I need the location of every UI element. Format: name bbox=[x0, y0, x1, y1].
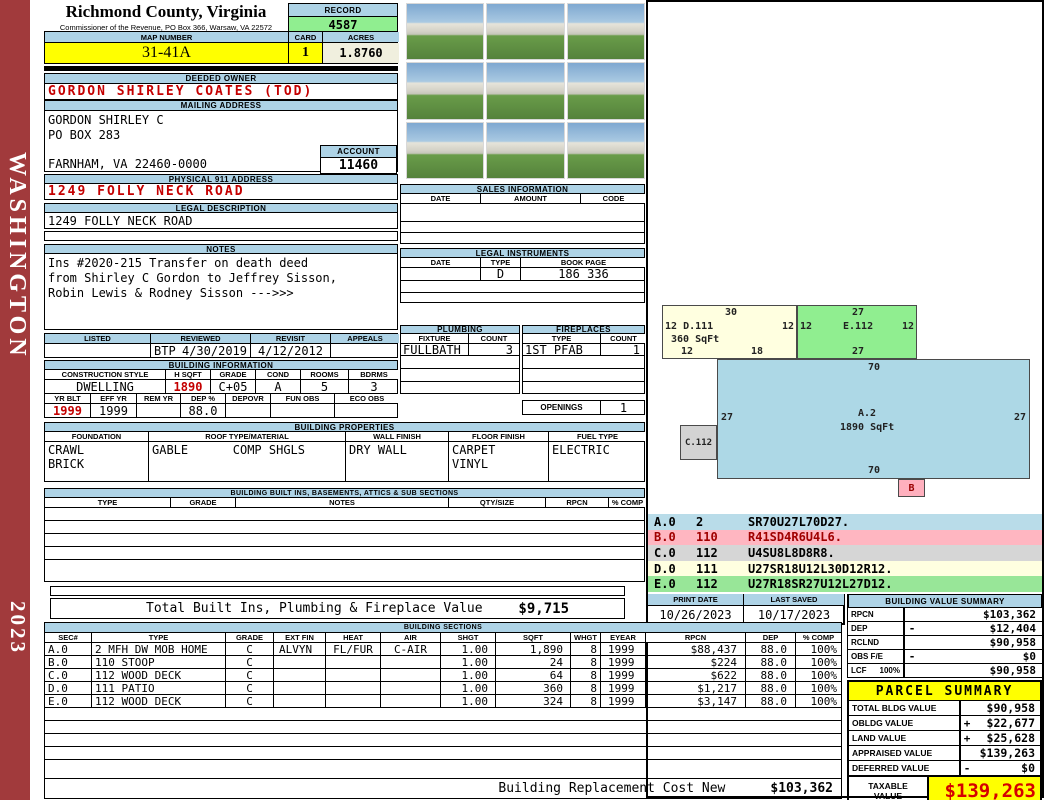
print-save-values: 10/26/2023 10/17/2023 bbox=[648, 606, 843, 623]
col-label: DATE bbox=[401, 258, 481, 267]
cell: B.0 bbox=[45, 656, 92, 668]
legend-row: B.0 110 R41SD4R6U4L6. bbox=[648, 530, 1042, 546]
col-label: CODE bbox=[581, 194, 646, 203]
appeals-value bbox=[331, 344, 399, 357]
replacement-cost-label: Building Replacement Cost New bbox=[498, 781, 725, 796]
col-label: TYPE bbox=[481, 258, 521, 267]
cell: 1999 bbox=[601, 669, 646, 681]
taxable-label-2: VALUE bbox=[874, 791, 902, 800]
col-label: BDRMS bbox=[349, 370, 399, 379]
parcel-label: APPRAISED VALUE bbox=[849, 746, 961, 760]
cell: 1999 bbox=[601, 682, 646, 694]
cell: $1,217 bbox=[646, 682, 746, 694]
cell: 8 bbox=[571, 695, 601, 707]
property-photo[interactable] bbox=[567, 122, 645, 179]
col-label: REM YR bbox=[137, 394, 181, 403]
legend-row: E.0 112 U27R18SR27U12L27D12. bbox=[648, 576, 1042, 592]
sketch-section-c112: C.112 bbox=[680, 425, 717, 460]
bvs-value: $12,404 bbox=[919, 622, 1039, 635]
built-ins-total-label: Total Built Ins, Plumbing & Fireplace Va… bbox=[146, 601, 483, 616]
depovr-value bbox=[226, 404, 271, 417]
building-properties-headers: FOUNDATION ROOF TYPE/MATERIAL WALL FINIS… bbox=[44, 432, 645, 442]
col-label: DATE bbox=[401, 194, 481, 203]
building-info-headers-2: YR BLT EFF YR REM YR DEP % DEPOVR FUN OB… bbox=[44, 394, 398, 404]
parcel-value: $25,628 bbox=[973, 731, 1038, 745]
building-sections-title: BUILDING SECTIONS bbox=[45, 623, 841, 633]
cell: 100% bbox=[796, 669, 841, 681]
instrument-date bbox=[401, 268, 481, 280]
cell: C bbox=[226, 695, 274, 707]
building-section-row: C.0112 WOOD DECKC1.006481999$62288.0100% bbox=[45, 669, 841, 682]
col-label: RPCN bbox=[546, 498, 609, 507]
parcel-op bbox=[961, 701, 973, 715]
col-label: FUN OBS bbox=[271, 394, 335, 403]
fixture-count: 3 bbox=[469, 344, 519, 355]
listed-value bbox=[45, 344, 151, 357]
property-photo[interactable] bbox=[567, 62, 645, 119]
building-section-row: B.0110 STOOPC1.002481999$22488.0100% bbox=[45, 656, 841, 669]
bvs-row: OBS F/E - $0 bbox=[848, 650, 1042, 664]
col-label: CONSTRUCTION STYLE bbox=[45, 370, 166, 379]
empty-row bbox=[401, 356, 519, 369]
col-label: YR BLT bbox=[45, 394, 91, 403]
construction-style-value: DWELLING bbox=[45, 380, 166, 393]
parcel-label: OBLDG VALUE bbox=[849, 716, 961, 730]
cell: 110 STOOP bbox=[92, 656, 226, 668]
floor-2: VINYL bbox=[452, 457, 488, 471]
cell: 64 bbox=[496, 669, 571, 681]
empty-row bbox=[45, 508, 644, 521]
sketch-section-e112: 27 12 E.112 12 27 bbox=[797, 305, 917, 359]
fireplace-count-value: 1 bbox=[601, 344, 646, 355]
building-properties-title: BUILDING PROPERTIES bbox=[44, 422, 645, 432]
legal-instruments-body bbox=[400, 281, 645, 303]
col-label: GRADE bbox=[226, 633, 274, 642]
parcel-op bbox=[961, 746, 973, 760]
cell bbox=[381, 682, 441, 694]
empty-row bbox=[45, 721, 841, 734]
eco-obs-value bbox=[335, 404, 399, 417]
legend-code: D.0 bbox=[654, 562, 696, 576]
page-title: Richmond County, Virginia bbox=[46, 2, 286, 22]
col-label: % COMP bbox=[796, 633, 841, 642]
bvs-extra: 100% bbox=[880, 666, 900, 675]
property-photo[interactable] bbox=[486, 122, 564, 179]
cell: 100% bbox=[796, 695, 841, 707]
col-label: DEP % bbox=[181, 394, 226, 403]
fuel-type-value: ELECTRIC bbox=[549, 442, 646, 481]
col-label: EXT FIN bbox=[274, 633, 326, 642]
cell bbox=[274, 682, 326, 694]
cell bbox=[326, 669, 381, 681]
cell: 1.00 bbox=[441, 682, 496, 694]
parcel-value: $22,677 bbox=[973, 716, 1038, 730]
fireplaces-body bbox=[522, 356, 645, 394]
bvs-row: LCF100% $90,958 bbox=[848, 664, 1042, 678]
fireplace-count-label: COUNT bbox=[601, 334, 646, 343]
taxable-value-amount: $139,263 bbox=[929, 777, 1040, 800]
bdrms-value: 3 bbox=[349, 380, 399, 393]
cell: E.0 bbox=[45, 695, 92, 707]
col-label: HEAT bbox=[326, 633, 381, 642]
county-header: Richmond County, Virginia Commissioner o… bbox=[46, 2, 286, 32]
review-values: BTP 4/30/2019 4/12/2012 bbox=[44, 344, 398, 358]
cell: C bbox=[226, 656, 274, 668]
col-label: ROOMS bbox=[301, 370, 349, 379]
empty-row bbox=[45, 708, 841, 721]
legend-row: A.0 2 SR70U27L70D27. bbox=[648, 514, 1042, 530]
deeded-owner-label: DEEDED OWNER bbox=[44, 73, 398, 84]
cell: C.0 bbox=[45, 669, 92, 681]
col-label: TYPE bbox=[45, 498, 171, 507]
cell: A.0 bbox=[45, 643, 92, 655]
bvs-label: OBS F/E bbox=[851, 652, 883, 661]
deeded-owner-value: GORDON SHIRLEY COATES (TOD) bbox=[44, 84, 398, 100]
replacement-cost-value: $103,362 bbox=[770, 781, 833, 796]
bvs-value: $90,958 bbox=[919, 636, 1039, 649]
sketch-legend: A.0 2 SR70U27L70D27. B.0 110 R41SD4R6U4L… bbox=[648, 514, 1042, 592]
roof-value: GABLE COMP SHGLS bbox=[149, 442, 346, 481]
cell: 1.00 bbox=[441, 669, 496, 681]
mailing-address-block: GORDON SHIRLEY C PO BOX 283 FARNHAM, VA … bbox=[44, 111, 398, 172]
eff-yr-value: 1999 bbox=[91, 404, 137, 417]
reviewed-by: BTP bbox=[154, 344, 176, 357]
col-label: QTY/SIZE bbox=[449, 498, 546, 507]
legend-num: 110 bbox=[696, 530, 748, 544]
col-label: EYEAR bbox=[601, 633, 646, 642]
taxable-value-label: TAXABLE VALUE bbox=[849, 777, 929, 800]
physical-address-label: PHYSICAL 911 ADDRESS bbox=[44, 174, 398, 184]
legend-path: R41SD4R6U4L6. bbox=[748, 530, 1042, 544]
col-label: SQFT bbox=[496, 633, 571, 642]
print-date-label: PRINT DATE bbox=[648, 594, 744, 606]
sidebar-district-label: WASHINGTON bbox=[0, 122, 30, 390]
sketch-section-a2: 70 27 A.2 1890 SqFt 27 70 bbox=[717, 359, 1030, 479]
reviewed-value: BTP 4/30/2019 bbox=[151, 344, 251, 357]
empty-row bbox=[401, 369, 519, 382]
cell: C-AIR bbox=[381, 643, 441, 655]
listed-label: LISTED bbox=[45, 334, 151, 343]
empty-row bbox=[45, 747, 841, 760]
divider-bar bbox=[44, 66, 398, 71]
mailing-address-label: MAILING ADDRESS bbox=[44, 100, 398, 111]
cell: 1,890 bbox=[496, 643, 571, 655]
dim-label: 27 bbox=[1014, 412, 1026, 423]
empty-row bbox=[401, 204, 644, 222]
notes-label: NOTES bbox=[44, 244, 398, 254]
wall-finish-value: DRY WALL bbox=[346, 442, 449, 481]
legend-num: 112 bbox=[696, 546, 748, 560]
foundation-2: BRICK bbox=[48, 457, 84, 471]
print-save-headers: PRINT DATE LAST SAVED bbox=[648, 594, 843, 606]
building-sections-headers: SEC# TYPE GRADE EXT FIN HEAT AIR SHGT SQ… bbox=[45, 633, 841, 643]
bvs-op bbox=[905, 636, 919, 649]
col-label: COND bbox=[256, 370, 301, 379]
cell: 100% bbox=[796, 682, 841, 694]
bvs-op bbox=[905, 608, 919, 621]
foundation-1: CRAWL bbox=[48, 443, 84, 457]
fireplace-type-label: TYPE bbox=[523, 334, 601, 343]
dim-label: 12 bbox=[681, 346, 693, 357]
cell bbox=[381, 656, 441, 668]
cell: ALVYN bbox=[274, 643, 326, 655]
property-photo[interactable] bbox=[567, 3, 645, 60]
cell: C bbox=[226, 669, 274, 681]
empty-row bbox=[44, 231, 398, 241]
foundation-value: CRAWL BRICK bbox=[45, 442, 149, 481]
cell bbox=[326, 682, 381, 694]
floor-finish-label: FLOOR FINISH bbox=[449, 432, 549, 441]
last-saved-label: LAST SAVED bbox=[744, 594, 844, 606]
map-number-value: 31-41A bbox=[45, 43, 289, 63]
sidebar: WASHINGTON 2023 bbox=[0, 0, 30, 800]
building-section-row: A.02 MFH DW MOB HOMECALVYNFL/FURC-AIR1.0… bbox=[45, 643, 841, 656]
col-label: NOTES bbox=[236, 498, 449, 507]
record-label: RECORD bbox=[288, 3, 398, 17]
bvs-op bbox=[905, 664, 919, 677]
cell: $3,147 bbox=[646, 695, 746, 707]
cell: 8 bbox=[571, 669, 601, 681]
bvs-op: - bbox=[905, 622, 919, 635]
bvs-label: DEP bbox=[851, 624, 867, 633]
property-photo[interactable] bbox=[486, 62, 564, 119]
cell: 1.00 bbox=[441, 656, 496, 668]
col-label: H SQFT bbox=[166, 370, 211, 379]
grade-value: C+05 bbox=[211, 380, 256, 393]
plumbing-title: PLUMBING bbox=[400, 325, 520, 334]
cell: 1.00 bbox=[441, 643, 496, 655]
col-label: EFF YR bbox=[91, 394, 137, 403]
roof-label: ROOF TYPE/MATERIAL bbox=[149, 432, 346, 441]
fun-obs-value bbox=[271, 404, 335, 417]
property-photo[interactable] bbox=[406, 62, 484, 119]
card-label: CARD bbox=[289, 32, 323, 42]
taxable-label-1: TAXABLE bbox=[868, 781, 908, 791]
legend-path: U4SU8L8D8R8. bbox=[748, 546, 1042, 560]
building-info-headers-1: CONSTRUCTION STYLE H SQFT GRADE COND ROO… bbox=[44, 370, 398, 380]
cell: C bbox=[226, 643, 274, 655]
parcel-row: TOTAL BLDG VALUE $90,958 bbox=[849, 700, 1040, 715]
empty-row bbox=[401, 222, 644, 233]
instrument-type: D bbox=[481, 268, 521, 280]
empty-row bbox=[523, 369, 644, 382]
instrument-book-page: 186 336 bbox=[521, 268, 646, 280]
cell: 8 bbox=[571, 656, 601, 668]
bvs-value: $0 bbox=[919, 650, 1039, 663]
section-code: E.112 bbox=[843, 321, 873, 332]
cell: FL/FUR bbox=[326, 643, 381, 655]
floor-finish-value: CARPET VINYL bbox=[449, 442, 549, 481]
parcel-op: + bbox=[961, 716, 973, 730]
cell: D.0 bbox=[45, 682, 92, 694]
dim-label: 70 bbox=[868, 465, 880, 476]
cell: $224 bbox=[646, 656, 746, 668]
fireplace-type-value: 1ST PFAB bbox=[523, 344, 601, 355]
account-value: 11460 bbox=[320, 158, 397, 174]
cell bbox=[381, 695, 441, 707]
empty-row bbox=[45, 534, 644, 547]
cell: 324 bbox=[496, 695, 571, 707]
count-label: COUNT bbox=[469, 334, 519, 343]
fuel-type-label: FUEL TYPE bbox=[549, 432, 646, 441]
acres-label: ACRES bbox=[323, 32, 399, 42]
building-section-row: E.0112 WOOD DECKC1.0032481999$3,14788.01… bbox=[45, 695, 841, 708]
legend-num: 2 bbox=[696, 515, 748, 529]
openings-value: 1 bbox=[601, 401, 646, 414]
photo-grid bbox=[406, 3, 645, 179]
cell bbox=[274, 656, 326, 668]
dim-label: 30 bbox=[725, 307, 737, 318]
empty-row bbox=[523, 356, 644, 369]
legend-path: U27R18SR27U12L27D12. bbox=[748, 577, 1042, 591]
cell: 100% bbox=[796, 643, 841, 655]
building-value-summary-title: BUILDING VALUE SUMMARY bbox=[848, 594, 1042, 608]
dim-label: 12 bbox=[782, 321, 794, 332]
building-section-row: D.0111 PATIOC1.0036081999$1,21788.0100% bbox=[45, 682, 841, 695]
card-value: 1 bbox=[289, 43, 323, 63]
account-label: ACCOUNT bbox=[320, 145, 397, 158]
parcel-summary-title: PARCEL SUMMARY bbox=[849, 682, 1040, 700]
cell: 1.00 bbox=[441, 695, 496, 707]
cell: 88.0 bbox=[746, 643, 796, 655]
built-ins-title: BUILDING BUILT INS, BASEMENTS, ATTICS & … bbox=[44, 488, 645, 498]
fixture-label: FIXTURE bbox=[401, 334, 469, 343]
mailing-line-1: GORDON SHIRLEY C bbox=[45, 111, 397, 127]
rooms-value: 5 bbox=[301, 380, 349, 393]
hsqft-value: 1890 bbox=[166, 380, 211, 393]
cell: 88.0 bbox=[746, 669, 796, 681]
bvs-value: $103,362 bbox=[919, 608, 1039, 621]
cell: 1999 bbox=[601, 695, 646, 707]
fireplaces-title: FIREPLACES bbox=[522, 325, 645, 334]
legend-row: C.0 112 U4SU8L8D8R8. bbox=[648, 545, 1042, 561]
cell: 8 bbox=[571, 682, 601, 694]
parcel-op: + bbox=[961, 731, 973, 745]
dim-label: 12 bbox=[800, 321, 812, 332]
empty-row bbox=[45, 547, 644, 560]
col-label: DEP bbox=[746, 633, 796, 642]
map-number-label: MAP NUMBER bbox=[45, 32, 289, 42]
bvs-label: RPCN bbox=[851, 610, 874, 619]
sales-information-title: SALES INFORMATION bbox=[400, 184, 645, 194]
parcel-label: DEFERRED VALUE bbox=[849, 761, 961, 775]
record-box: RECORD 4587 bbox=[288, 3, 398, 30]
legend-num: 111 bbox=[696, 562, 748, 576]
col-label: GRADE bbox=[211, 370, 256, 379]
physical-address-value: 1249 FOLLY NECK ROAD bbox=[44, 184, 398, 200]
dim-label: 18 bbox=[751, 346, 763, 357]
parcel-row: LAND VALUE + $25,628 bbox=[849, 730, 1040, 745]
cell: 24 bbox=[496, 656, 571, 668]
fireplaces-headers: TYPE COUNT bbox=[522, 334, 645, 344]
dim-label: 12 bbox=[902, 321, 914, 332]
notes-line-3: Robin Lewis & Rodney Sisson --->>> bbox=[48, 286, 397, 301]
bvs-row: DEP - $12,404 bbox=[848, 622, 1042, 636]
built-ins-total-value: $9,715 bbox=[518, 601, 569, 617]
col-label: TYPE bbox=[92, 633, 226, 642]
legal-instruments-headers: DATE TYPE BOOK PAGE bbox=[400, 258, 645, 268]
cell: 111 PATIO bbox=[92, 682, 226, 694]
appeals-label: APPEALS bbox=[331, 334, 399, 343]
print-date-value: 10/26/2023 bbox=[648, 606, 744, 623]
built-ins-body bbox=[44, 508, 645, 582]
bvs-op: - bbox=[905, 650, 919, 663]
built-ins-total-row: Total Built Ins, Plumbing & Fireplace Va… bbox=[50, 598, 625, 619]
building-value-summary: BUILDING VALUE SUMMARY RPCN $103,362 DEP… bbox=[847, 594, 1042, 678]
sketch-d111-left: 12 D.111 bbox=[665, 321, 713, 332]
empty-row bbox=[401, 281, 644, 293]
legend-code: B.0 bbox=[654, 530, 696, 544]
plumbing-row: FULLBATH 3 bbox=[400, 344, 520, 356]
col-label: ECO OBS bbox=[335, 394, 399, 403]
roof-type: GABLE bbox=[152, 443, 188, 457]
mailing-line-2: PO BOX 283 bbox=[45, 127, 397, 142]
col-label: SHGT bbox=[441, 633, 496, 642]
section-sqft: 1890 SqFt bbox=[840, 422, 894, 433]
dim-label: 12 bbox=[665, 321, 677, 332]
revisit-label: REVISIT bbox=[251, 334, 331, 343]
dim-label: 27 bbox=[852, 346, 864, 357]
sidebar-year-label: 2023 bbox=[0, 580, 30, 675]
cell: 1999 bbox=[601, 643, 646, 655]
dep-pct-value: 88.0 bbox=[181, 404, 226, 417]
sales-headers: DATE AMOUNT CODE bbox=[400, 194, 645, 204]
cell: 8 bbox=[571, 643, 601, 655]
empty-row bbox=[45, 734, 841, 747]
empty-row bbox=[50, 586, 625, 596]
wall-finish-label: WALL FINISH bbox=[346, 432, 449, 441]
legend-path: SR70U27L70D27. bbox=[748, 515, 1042, 529]
legend-path: U27SR18U12L30D12R12. bbox=[748, 562, 1042, 576]
cell bbox=[326, 695, 381, 707]
notes-block: Ins #2020-215 Transfer on death deed fro… bbox=[44, 254, 398, 330]
property-photo[interactable] bbox=[406, 3, 484, 60]
bvs-row: RPCN $103,362 bbox=[848, 608, 1042, 622]
map-card-acres-headers: MAP NUMBER CARD ACRES bbox=[44, 31, 398, 43]
built-ins-headers: TYPE GRADE NOTES QTY/SIZE RPCN % COMP bbox=[44, 498, 645, 508]
cell: 88.0 bbox=[746, 695, 796, 707]
parcel-summary: PARCEL SUMMARY TOTAL BLDG VALUE $90,958 … bbox=[847, 680, 1042, 800]
col-label: AMOUNT bbox=[481, 194, 581, 203]
taxable-value-row: TAXABLE VALUE $139,263 bbox=[849, 775, 1040, 800]
openings-row: OPENINGS 1 bbox=[522, 400, 645, 415]
cell bbox=[381, 669, 441, 681]
col-label: RPCN bbox=[646, 633, 746, 642]
col-label: GRADE bbox=[171, 498, 236, 507]
building-sections-table: BUILDING SECTIONS SEC# TYPE GRADE EXT FI… bbox=[44, 622, 842, 799]
floor-1: CARPET bbox=[452, 443, 495, 457]
fireplace-row: 1ST PFAB 1 bbox=[522, 344, 645, 356]
property-photo[interactable] bbox=[406, 122, 484, 179]
bvs-label: RCLND bbox=[851, 638, 879, 647]
legend-num: 112 bbox=[696, 577, 748, 591]
legend-code: C.0 bbox=[654, 546, 696, 560]
print-save-table: PRINT DATE LAST SAVED 10/26/2023 10/17/2… bbox=[648, 594, 845, 625]
cell: 88.0 bbox=[746, 656, 796, 668]
cell: 112 WOOD DECK bbox=[92, 669, 226, 681]
revisit-value: 4/12/2012 bbox=[251, 344, 331, 357]
rem-yr-value bbox=[137, 404, 181, 417]
property-photo[interactable] bbox=[486, 3, 564, 60]
fixture-value: FULLBATH bbox=[401, 344, 469, 355]
parcel-row: APPRAISED VALUE $139,263 bbox=[849, 745, 1040, 760]
legal-description-label: LEGAL DESCRIPTION bbox=[44, 203, 398, 213]
col-label: DEPOVR bbox=[226, 394, 271, 403]
parcel-value: $139,263 bbox=[973, 746, 1038, 760]
parcel-row: OBLDG VALUE + $22,677 bbox=[849, 715, 1040, 730]
cell: $88,437 bbox=[646, 643, 746, 655]
acres-value: 1.8760 bbox=[323, 43, 399, 63]
